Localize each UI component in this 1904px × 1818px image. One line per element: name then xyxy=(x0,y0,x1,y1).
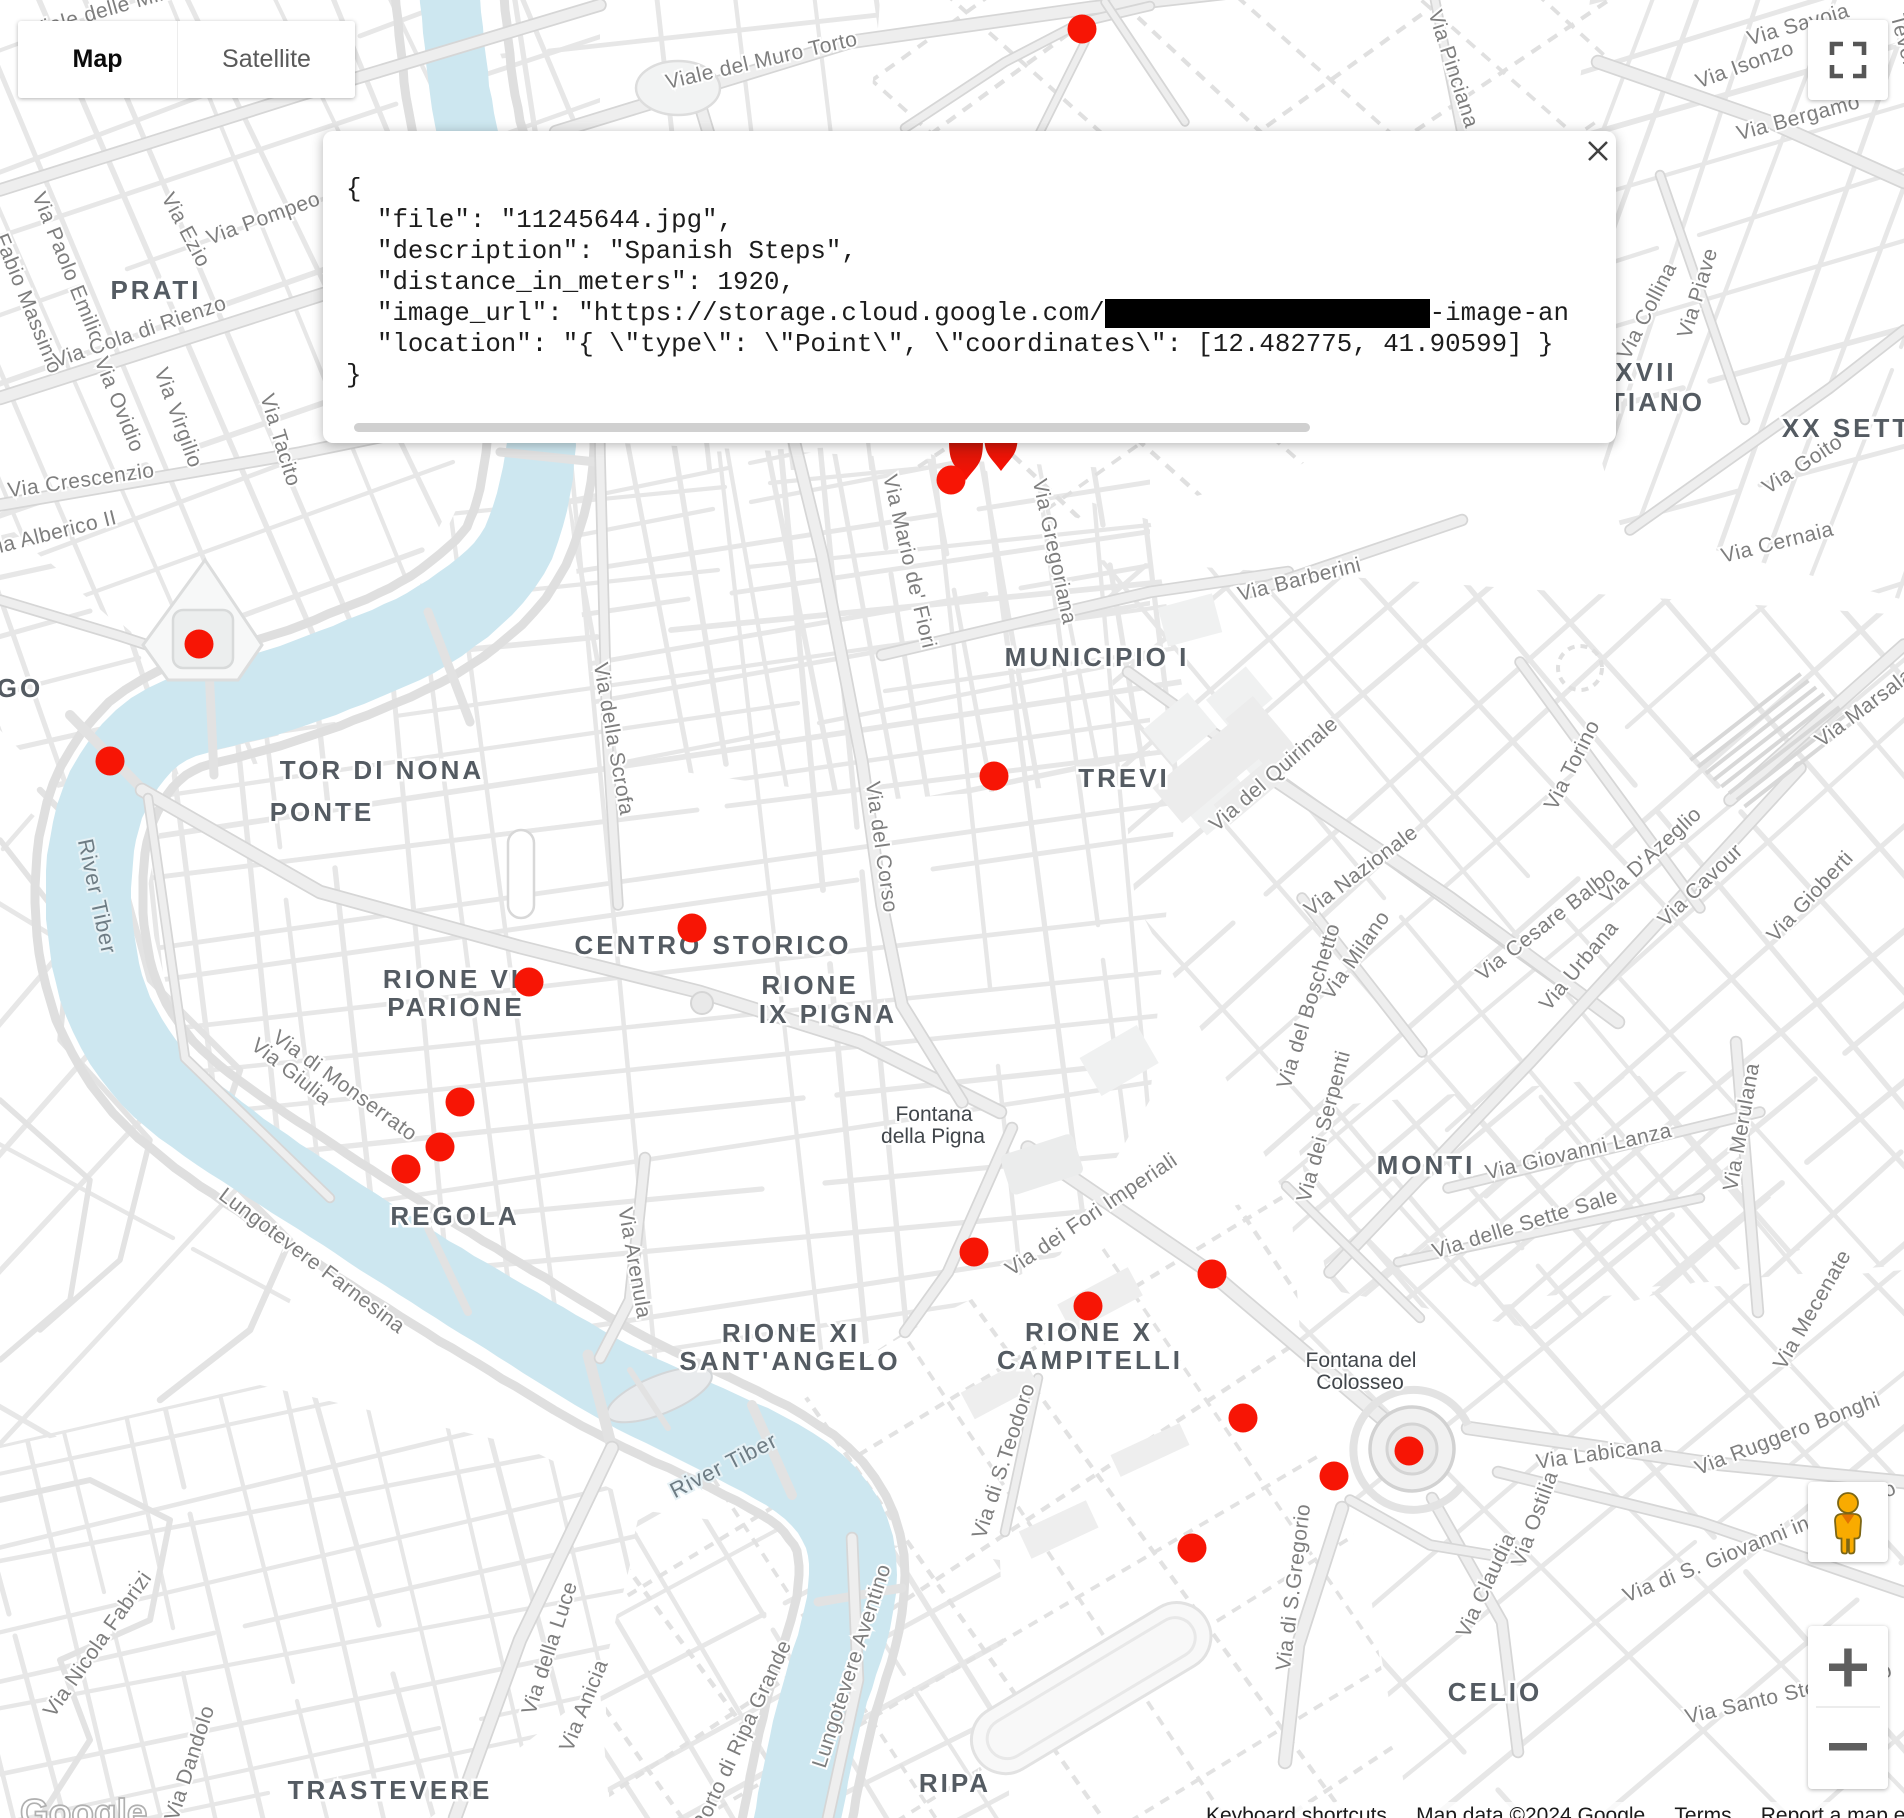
svg-text:PONTE: PONTE xyxy=(270,797,375,827)
svg-text:Fontana: Fontana xyxy=(895,1103,972,1126)
svg-text:TOR DI NONA: TOR DI NONA xyxy=(280,755,484,785)
svg-text:IX PIGNA: IX PIGNA xyxy=(759,999,897,1029)
svg-text:MONTI: MONTI xyxy=(1377,1150,1476,1180)
svg-text:TIANO: TIANO xyxy=(1609,387,1705,417)
svg-text:RIONE X: RIONE X xyxy=(1025,1317,1153,1347)
svg-text:Colosseo: Colosseo xyxy=(1316,1371,1404,1394)
svg-text:Fontana del: Fontana del xyxy=(1306,1349,1417,1372)
svg-text:TREVI: TREVI xyxy=(1078,763,1170,793)
svg-text:SANT'ANGELO: SANT'ANGELO xyxy=(679,1346,900,1376)
svg-text:PARIONE: PARIONE xyxy=(387,992,525,1022)
svg-text:GO: GO xyxy=(0,673,43,703)
svg-text:TRASTEVERE: TRASTEVERE xyxy=(288,1775,493,1805)
svg-text:RIONE: RIONE xyxy=(761,970,858,1000)
svg-text:XVII: XVII xyxy=(1615,357,1676,387)
svg-text:REGOLA: REGOLA xyxy=(390,1201,519,1231)
svg-text:XX SETTEMB: XX SETTEMB xyxy=(1782,413,1904,443)
svg-text:CAMPITELLI: CAMPITELLI xyxy=(997,1345,1183,1375)
svg-text:CENTRO STORICO: CENTRO STORICO xyxy=(575,930,852,960)
svg-text:RIPA: RIPA xyxy=(919,1768,991,1798)
svg-text:RIONE XI: RIONE XI xyxy=(722,1318,860,1348)
svg-text:PRATI: PRATI xyxy=(110,275,201,305)
svg-text:MUNICIPIO I: MUNICIPIO I xyxy=(1005,642,1190,672)
svg-text:CELIO: CELIO xyxy=(1448,1677,1542,1707)
svg-text:della Pigna: della Pigna xyxy=(881,1125,985,1148)
svg-text:RIONE VI: RIONE VI xyxy=(383,964,521,994)
